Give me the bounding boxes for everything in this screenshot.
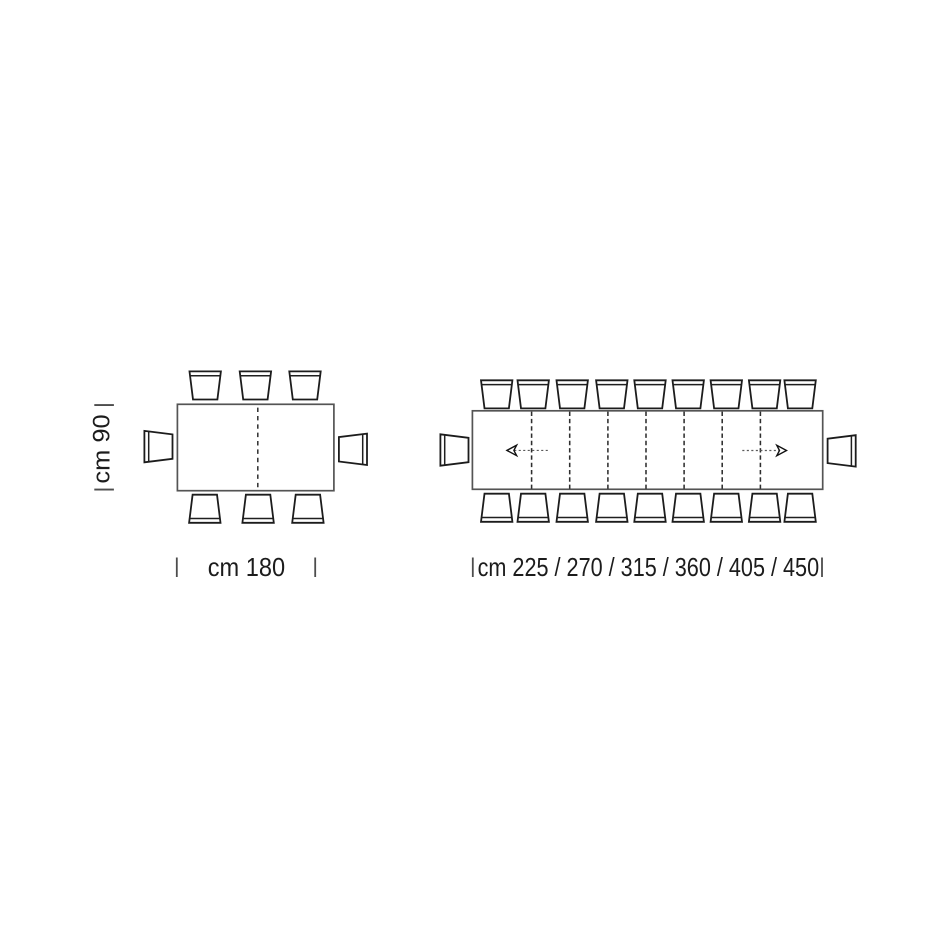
svg-text:cm 180: cm 180 (208, 552, 285, 582)
svg-text:cm 90: cm 90 (88, 414, 115, 483)
svg-text:cm 225 / 270 / 315 / 360 / 405: cm 225 / 270 / 315 / 360 / 405 / 450 (478, 552, 819, 582)
